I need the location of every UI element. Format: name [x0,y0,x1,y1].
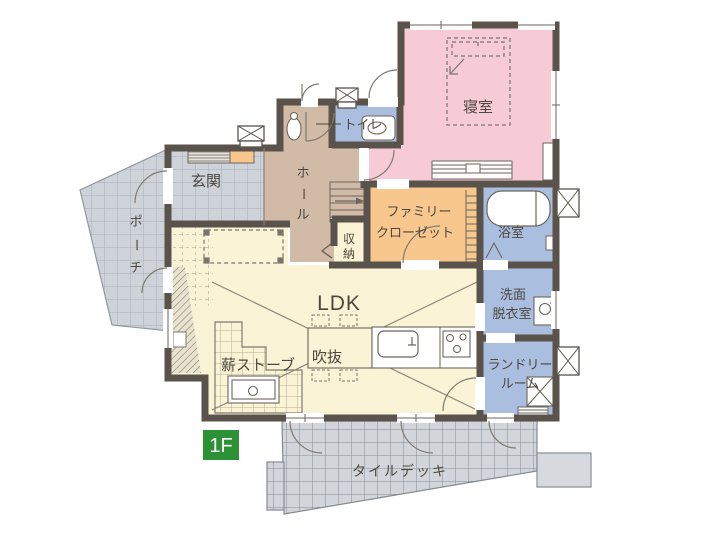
svg-text:ポ: ポ [129,214,142,229]
wood-stove [228,376,279,403]
bedroom-dresser [432,161,512,179]
floor-plan-page: 寝室 トイレ 玄関 ポ ー チ ホ ー ル ファミリー クローゼット 浴室 収 … [0,0,714,536]
floor-badge: 1F [203,430,239,460]
svg-text:ルーム: ルーム [501,376,540,391]
window-bath-icon [557,189,579,217]
label-void: 吹抜 [312,349,342,366]
svg-text:チ: チ [129,260,142,275]
floor-plan-drawing: 寝室 トイレ 玄関 ポ ー チ ホ ー ル ファミリー クローゼット 浴室 収 … [0,0,714,536]
svg-text:ホ: ホ [296,165,309,180]
svg-text:クローゼット: クローゼット [376,225,454,240]
label-wood-stove: 薪ストーブ [221,356,295,374]
svg-text:ファミリー: ファミリー [386,204,451,219]
window-toilet-top-icon [336,88,358,108]
hatch-object [173,332,186,347]
label-toilet: トイレ [343,117,382,132]
kitchen-sink [378,331,418,357]
svg-text:納: 納 [343,247,355,261]
svg-text:脱衣室: 脱衣室 [492,306,531,321]
deck-step [267,462,284,510]
svg-text:ランドリー: ランドリー [487,357,552,372]
label-entrance: 玄関 [191,173,221,190]
floor-badge-text: 1F [209,435,232,457]
side-door-arc [369,70,397,98]
label-ldk: LDK [317,292,361,315]
label-storage: 収 納 [343,232,355,261]
kitchen-counter [372,327,477,368]
porch-area [80,148,170,331]
label-hall: ホ ー ル [296,165,311,222]
label-porch: ポ ー チ [129,214,144,275]
label-bedroom: 寝室 [463,98,493,116]
bathtub [487,191,550,226]
bedroom-side-cabinet [543,143,554,180]
svg-text:ー: ー [296,187,311,200]
label-bath: 浴室 [498,225,524,240]
svg-text:洗面: 洗面 [500,287,526,302]
deck-side-slab [537,453,591,487]
window-entrance-top-icon [238,126,264,147]
svg-text:収: 収 [343,232,355,246]
svg-text:ー: ー [129,238,144,251]
label-tile-deck: タイルデッキ [352,463,448,479]
window-laundry-icon [557,347,579,375]
svg-text:ル: ル [296,207,309,222]
